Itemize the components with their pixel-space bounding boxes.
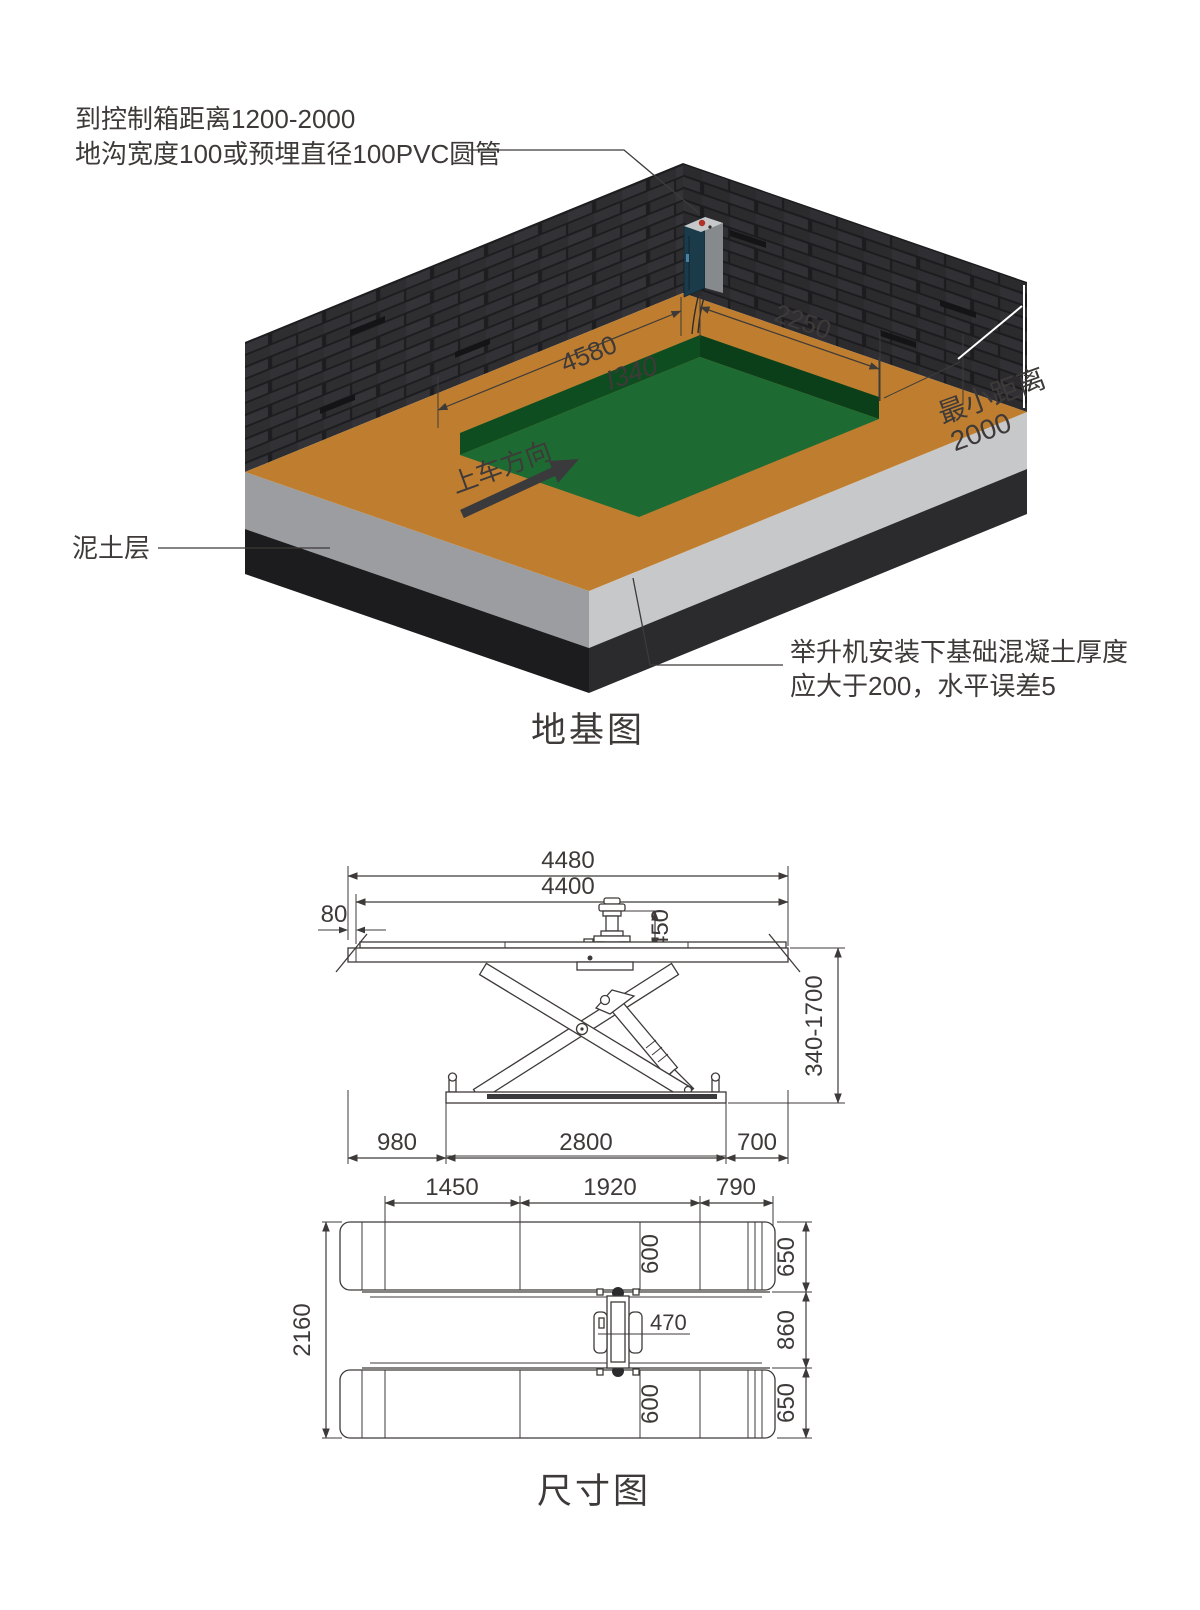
note-concrete-line2: 应大于200，水平误差5 bbox=[790, 671, 1056, 701]
side-view: 4480 4400 80 450 bbox=[318, 847, 845, 1164]
platform-side bbox=[336, 934, 800, 972]
dimension-title: 尺寸图 bbox=[537, 1472, 651, 1511]
dim-650-top: 650 bbox=[773, 1237, 800, 1277]
dim-980: 980 bbox=[377, 1129, 417, 1156]
dim-650-bottom: 650 bbox=[773, 1383, 800, 1423]
cabinet-dark-button bbox=[708, 225, 711, 228]
dim-600-top: 600 bbox=[637, 1234, 664, 1274]
dim-340-1700: 340-1700 bbox=[801, 975, 828, 1076]
note-control-line1: 到控制箱距离1200-2000 bbox=[75, 104, 355, 134]
platform-top-plan bbox=[340, 1222, 775, 1290]
note-soil: 泥土层 bbox=[72, 533, 150, 563]
dim-600-bottom: 600 bbox=[637, 1384, 664, 1424]
note-control-line2: 地沟宽度100或预埋直径100PVC圆管 bbox=[75, 139, 501, 169]
scissor-mechanism bbox=[474, 963, 694, 1100]
dim-2160: 2160 bbox=[289, 1303, 316, 1356]
page: 到控制箱距离1200-2000 地沟宽度100或预埋直径100PVC圆管 458… bbox=[0, 0, 1200, 1610]
dim-2800: 2800 bbox=[559, 1129, 612, 1156]
foundation-title: 地基图 bbox=[531, 711, 645, 750]
dim-4480: 4480 bbox=[541, 847, 594, 874]
note-concrete-line1: 举升机安装下基础混凝土厚度 bbox=[790, 637, 1128, 667]
cabinet-red-button bbox=[699, 220, 705, 226]
side-rails-plan bbox=[362, 1292, 770, 1368]
cabinet-handle bbox=[686, 254, 689, 262]
motor-unit-side bbox=[584, 898, 630, 947]
foundation-diagram: 到控制箱距离1200-2000 地沟宽度100或预埋直径100PVC圆管 458… bbox=[72, 104, 1128, 750]
dim-790: 790 bbox=[716, 1174, 756, 1201]
platform-bottom-plan bbox=[340, 1370, 775, 1438]
dim-470: 470 bbox=[650, 1310, 687, 1335]
dim-80: 80 bbox=[321, 901, 348, 928]
dim-2160-marks bbox=[322, 1222, 342, 1438]
dim-4400: 4400 bbox=[541, 873, 594, 900]
dim-1920: 1920 bbox=[583, 1174, 636, 1201]
dim-1450: 1450 bbox=[425, 1174, 478, 1201]
drawing-canvas: 到控制箱距离1200-2000 地沟宽度100或预埋直径100PVC圆管 458… bbox=[0, 0, 1200, 1610]
dim-700: 700 bbox=[737, 1129, 777, 1156]
plan-view: 1450 1920 790 bbox=[289, 1174, 812, 1511]
dim-860: 860 bbox=[773, 1310, 800, 1350]
